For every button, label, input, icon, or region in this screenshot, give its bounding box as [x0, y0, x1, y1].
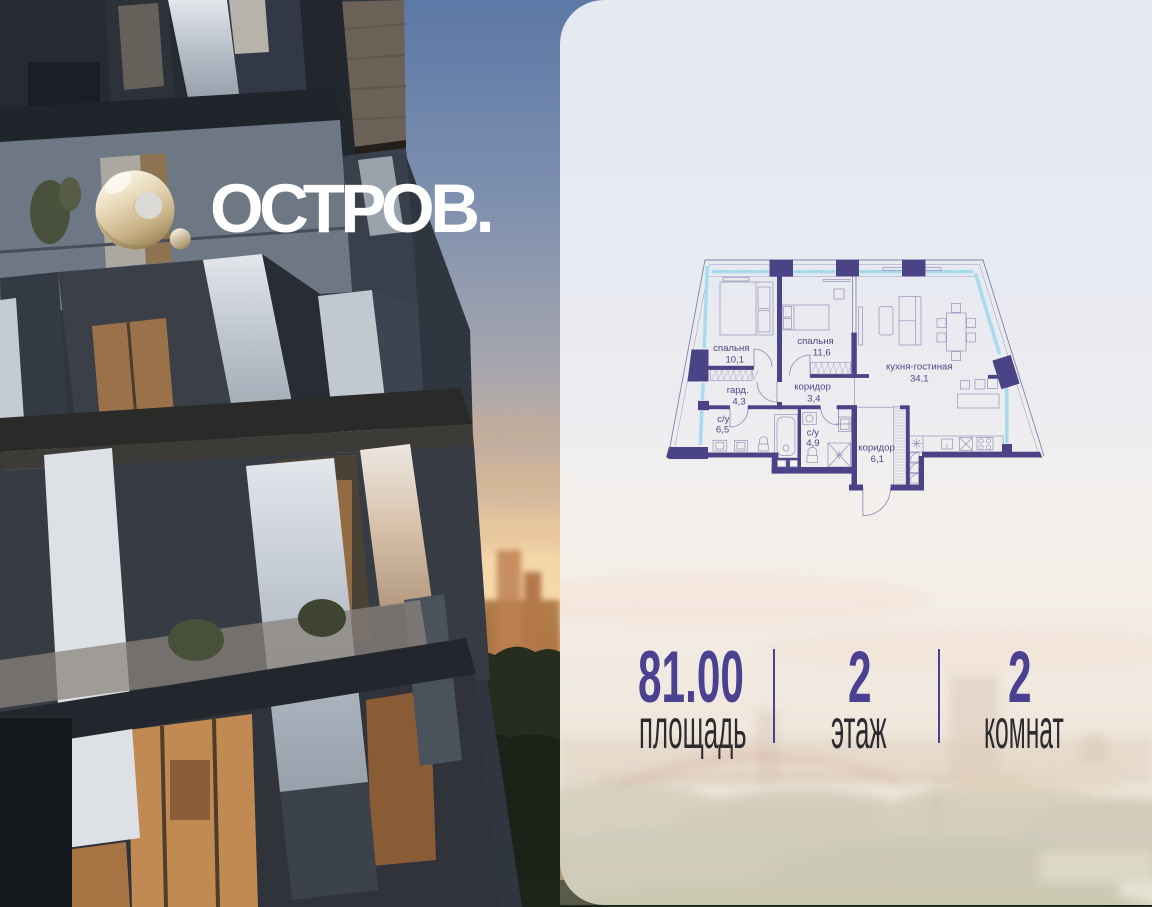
- svg-text:кухня-гостиная: кухня-гостиная: [886, 362, 953, 373]
- svg-text:спальня: спальня: [797, 336, 833, 347]
- svg-text:4,3: 4,3: [732, 397, 745, 408]
- svg-text:10,1: 10,1: [725, 355, 744, 366]
- svg-text:34,1: 34,1: [910, 374, 929, 385]
- svg-text:3,4: 3,4: [807, 394, 821, 405]
- svg-text:11,6: 11,6: [813, 348, 831, 359]
- svg-text:6,5: 6,5: [716, 424, 729, 435]
- svg-text:гард.: гард.: [727, 385, 749, 396]
- svg-text:ОСТРОВ.: ОСТРОВ.: [210, 170, 491, 247]
- svg-text:коридор: коридор: [794, 382, 831, 393]
- svg-text:с/у: с/у: [807, 427, 819, 438]
- svg-text:6,1: 6,1: [871, 454, 884, 465]
- svg-text:спальня: спальня: [713, 343, 749, 354]
- svg-text:коридор: коридор: [858, 443, 895, 454]
- svg-text:4,9: 4,9: [806, 438, 819, 449]
